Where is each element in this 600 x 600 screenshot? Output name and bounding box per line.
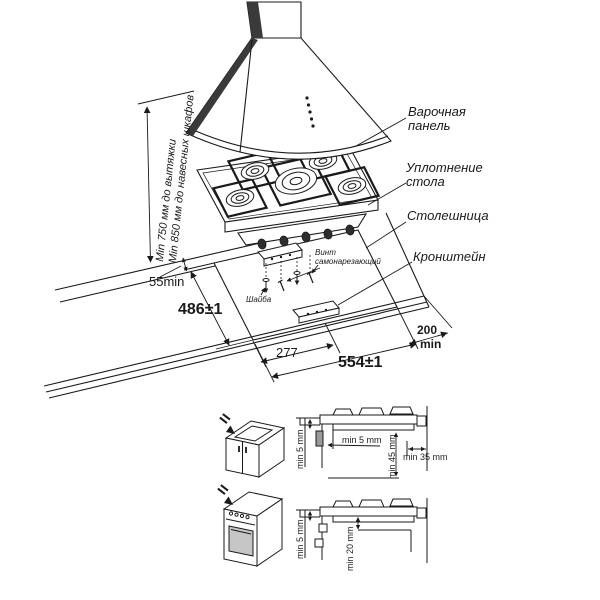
seal-callout: Уплотнение стола: [406, 161, 490, 189]
cs-top-below-clearance: min 45 mm: [387, 434, 397, 479]
right-gap-value: 200: [417, 324, 437, 337]
screw-callout: Винт самонарезающий: [315, 249, 387, 266]
bracket-callout: Кронштейн: [413, 250, 503, 264]
cooker-hood-drawing: [186, 2, 391, 159]
diagram-line-art: [0, 0, 600, 600]
cutout-outline: [214, 230, 397, 340]
cs-bottom-edge-gap: min 5 mm: [295, 519, 305, 559]
wall-gap-dimension: 55min: [149, 274, 184, 289]
washer-callout: Шайба: [246, 296, 271, 305]
hob-callout: Варочная панель: [408, 105, 476, 133]
arrow-icon: [219, 413, 235, 434]
cs-top-side-clearance: min 35 mm: [403, 452, 448, 462]
arrow-icon: [217, 484, 233, 505]
cutout-depth-dimension: 486±1: [178, 301, 222, 319]
countertop-callout: Столешница: [407, 209, 502, 223]
cs-bottom-below-clearance: min 20 mm: [345, 526, 355, 571]
center-dimension: 277: [276, 345, 298, 360]
cs-top-edge-gap: min 5 mm: [295, 429, 305, 469]
cutout-width-dimension: 554±1: [338, 354, 382, 372]
washer-icon: [263, 272, 300, 293]
installation-diagram: Min 750 мм до вытяжки Min 850 мм до наве…: [0, 0, 600, 600]
cross-section-bottom: [296, 498, 427, 563]
right-gap-unit: min: [420, 338, 441, 351]
oven-cabinet-icon: [217, 484, 282, 566]
bracket-icon-front: [293, 301, 339, 323]
base-cabinet-icon: [219, 413, 284, 477]
cs-top-front-gap: min 5 mm: [342, 435, 382, 445]
